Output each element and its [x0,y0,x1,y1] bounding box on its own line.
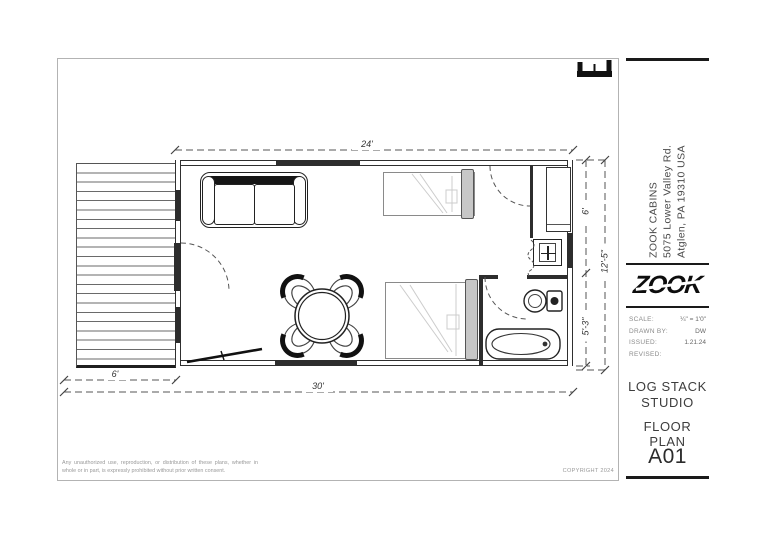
project-name-line1: LOG STACK [626,379,709,395]
vanity-sink [533,239,562,266]
field-label: DRAWN BY: [629,328,668,335]
drawing-info-fields: SCALE: ¼" = 1'0" DRAWN BY: DW ISSUED: 1.… [629,316,706,362]
bed-double-headboard [465,279,478,360]
dimension-label-deck: 6' [104,369,126,380]
dimension-label-right-upper: 6' [581,201,592,223]
bed-twin-headboard [461,169,474,219]
couch-cushion [214,184,255,225]
field-row-drawn-by: DRAWN BY: DW [629,328,706,335]
bathroom-partition-wall [479,276,483,366]
closet-wall [530,166,533,238]
couch-cushion [254,184,295,225]
sheet-number: A01 [626,445,709,469]
disclaimer-note: Any unauthorized use, reproduction, or d… [62,459,258,476]
window-right-wall [567,233,573,268]
bathroom-wall-segment-right [527,275,567,279]
window-left-wall-upper [175,190,181,221]
drawing-sheet: 24' 30' 6' 6' 5'-3" 12'-5" Any unauthori… [0,0,768,543]
field-row-issued: ISSUED: 1.21.24 [629,339,706,346]
dimension-label-top: 24' [352,139,382,150]
dimension-label-bottom: 30' [303,381,333,392]
company-logo: ZOOK [624,267,711,304]
field-label: REVISED: [629,351,662,358]
dimension-label-right-lower: 5'-3" [581,312,592,342]
company-address-line1: 5075 Lower Valley Rd. [660,66,674,258]
dimension-label-right-overall: 12'-5" [600,244,611,280]
couch-back [208,176,302,184]
window-left-wall-lower [175,307,181,343]
couch [200,172,308,228]
company-name: ZOOK CABINS [646,66,660,258]
window-top-wall [276,160,360,166]
bathroom-wall-segment-left [479,275,498,279]
title-block-divider [626,306,709,308]
field-row-revised: REVISED: [629,351,706,358]
field-label: SCALE: [629,316,654,323]
field-value: DW [695,328,706,335]
company-address-line2: Atglen, PA 19310 USA [675,66,689,258]
counter-shelf-line [547,224,570,225]
faucet-icon [547,246,549,260]
copyright-note: COPYRIGHT 2024 [500,468,614,474]
window-bottom-wall [275,360,357,366]
title-block-divider [626,58,709,61]
project-name-line2: STUDIO [626,395,709,411]
company-info-block: ZOOK CABINS 5075 Lower Valley Rd. Atglen… [626,64,709,260]
exterior-wall-bottom [175,360,573,366]
deck-door-leaf [174,243,181,291]
deck [76,163,176,368]
field-row-scale: SCALE: ¼" = 1'0" [629,316,706,323]
field-value: ¼" = 1'0" [680,316,706,323]
title-block-divider [626,263,709,265]
bed-double [385,282,475,359]
title-block-divider [626,476,709,479]
closet-counter [546,167,571,232]
exterior-wall-top [175,160,573,166]
project-title-block: LOG STACK STUDIO FLOOR PLAN [626,379,709,449]
field-value: 1.21.24 [684,339,706,346]
field-label: ISSUED: [629,339,657,346]
